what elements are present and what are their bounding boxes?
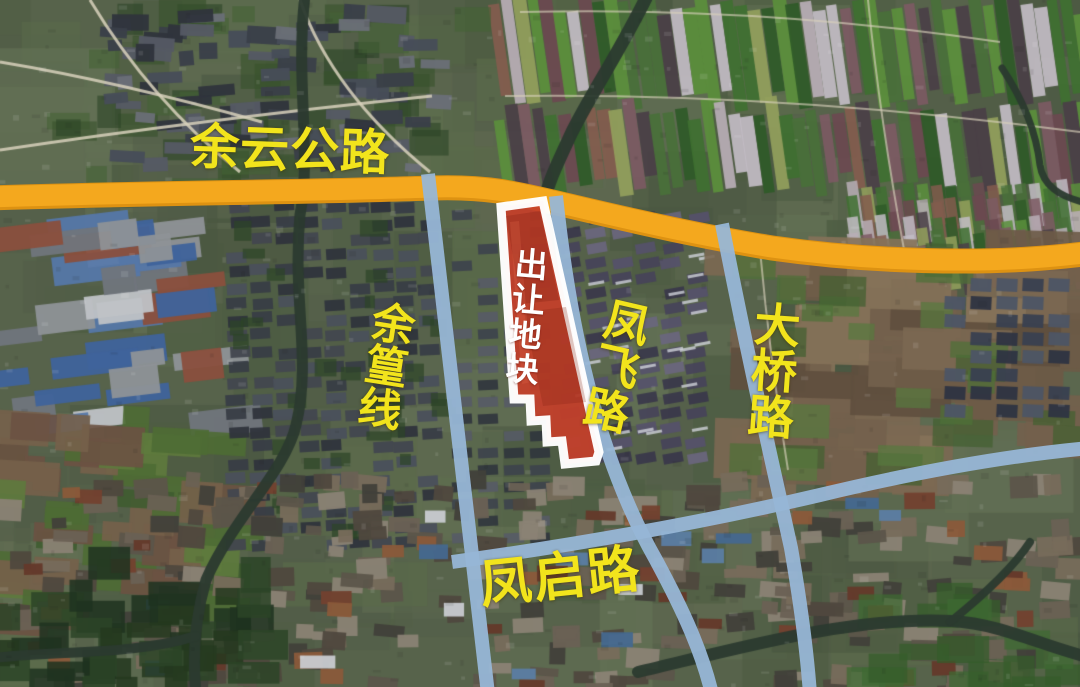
road-label-daqiao: 大桥路 — [743, 299, 799, 440]
road-daqiao-overlay — [722, 224, 810, 687]
road-yuhuang-overlay — [428, 174, 488, 687]
road-label-yuyun: 余云公路 — [189, 122, 391, 178]
map-stage: 余云公路 余篁线 出让地块 凤飞路 大桥路 凤启路 — [0, 0, 1080, 687]
road-label-fengqi: 凤启路 — [477, 543, 644, 612]
